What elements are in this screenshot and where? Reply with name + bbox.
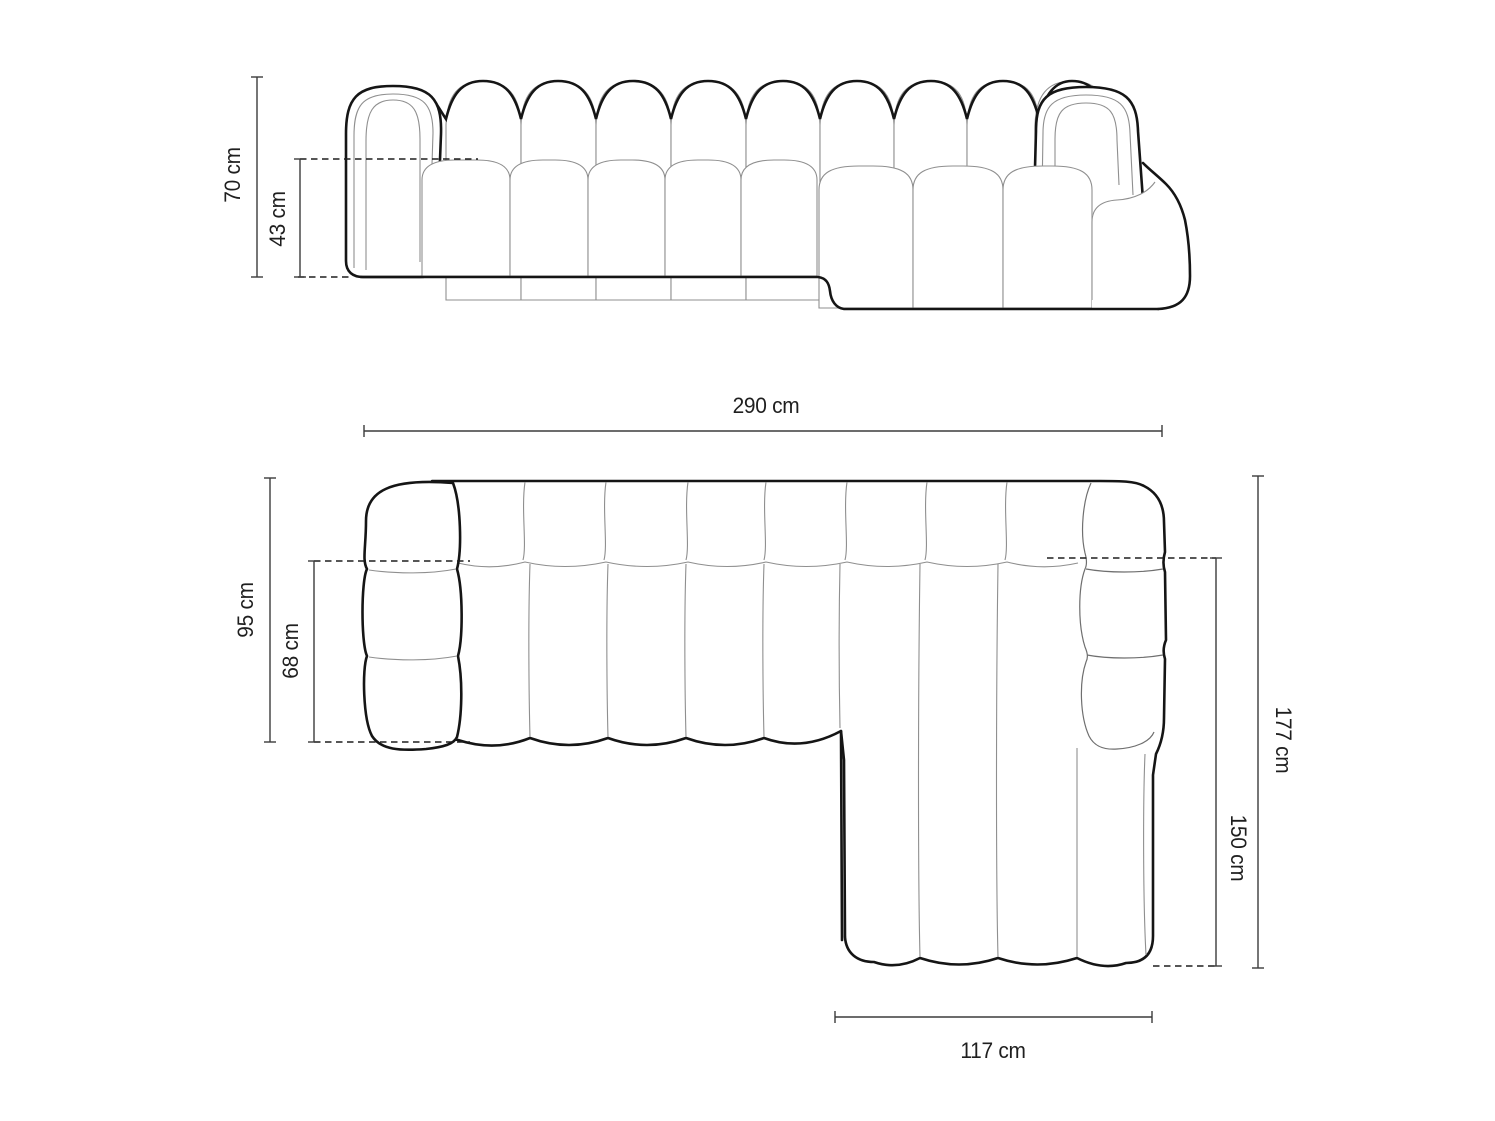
dim-line-chaise-length <box>1210 558 1222 966</box>
front-chaise-cushions <box>819 166 1092 308</box>
dim-label-chaise-width: 117 cm <box>960 1038 1025 1064</box>
dim-line-chaise-width <box>835 1011 1152 1023</box>
sofa-dimensions-diagram: 70 cm 43 cm 290 cm 95 cm 68 cm 177 cm 15… <box>0 0 1495 1121</box>
dim-line-total-width <box>364 425 1162 437</box>
plan-view <box>264 425 1264 1023</box>
front-view <box>251 77 1190 309</box>
front-dim-lines <box>251 77 306 277</box>
dim-label-total-depth: 95 cm <box>233 582 259 638</box>
dim-label-chaise-side-total-depth: 177 cm <box>1270 707 1296 774</box>
plan-chaise-left-edge <box>841 731 842 940</box>
dim-line-chaise-side-total-depth <box>1252 476 1264 968</box>
dim-label-seat-depth: 68 cm <box>278 623 304 679</box>
dim-line-total-height <box>251 77 263 277</box>
plan-left-armrest <box>363 482 462 750</box>
dim-label-chaise-length: 150 cm <box>1225 815 1251 882</box>
plan-body-outline <box>432 481 1166 966</box>
dim-line-seat-depth <box>308 561 320 742</box>
dim-label-total-width: 290 cm <box>733 393 800 419</box>
front-seat-cushions <box>422 160 817 276</box>
dim-line-seat-height <box>294 159 306 277</box>
dim-line-total-depth <box>264 478 276 742</box>
dim-label-total-height: 70 cm <box>220 147 246 203</box>
dim-label-seat-height: 43 cm <box>265 191 291 247</box>
